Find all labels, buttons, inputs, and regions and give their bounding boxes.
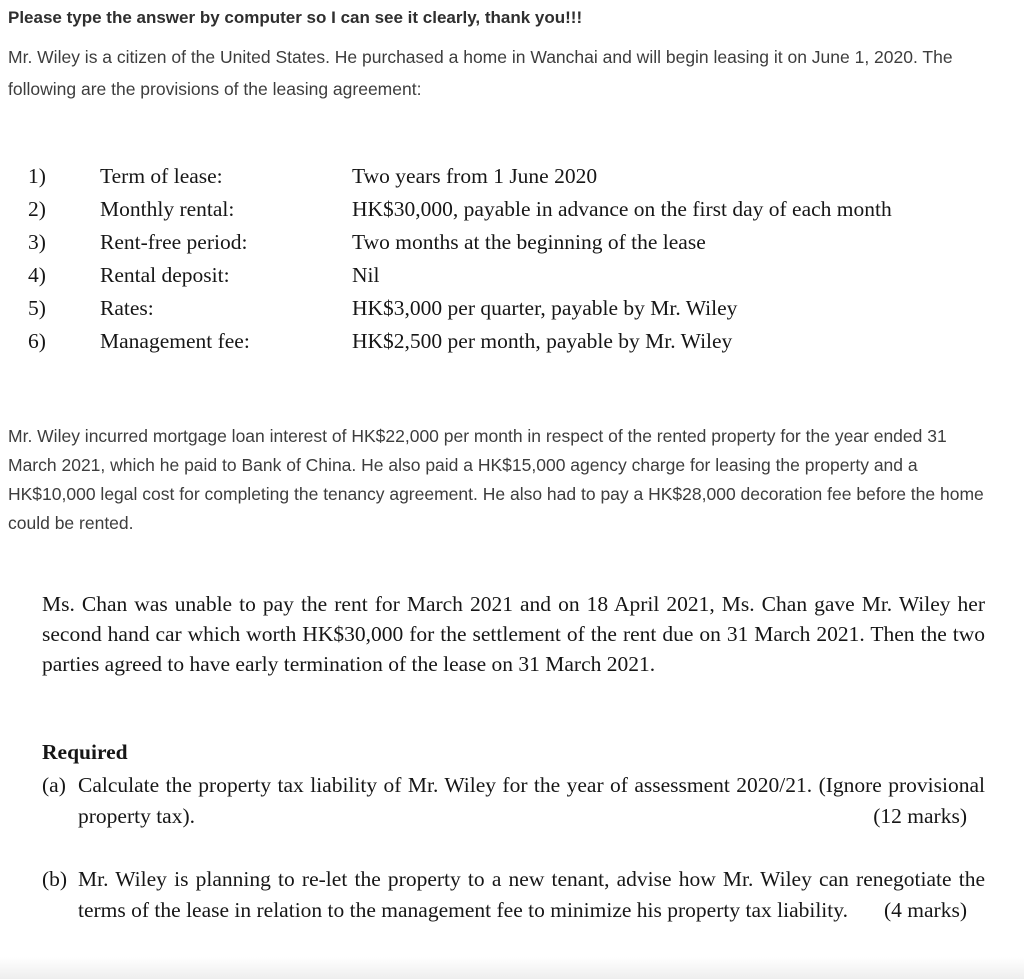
provision-label: Management fee:	[100, 325, 352, 358]
provision-label: Term of lease:	[100, 160, 352, 193]
provision-row: 2) Monthly rental: HK$30,000, payable in…	[28, 193, 988, 226]
item-b-marks: (4 marks)	[884, 895, 967, 926]
intro-paragraph: Mr. Wiley is a citizen of the United Sta…	[8, 41, 983, 105]
required-item-b: (b) Mr. Wiley is planning to re-let the …	[42, 864, 985, 925]
provision-row: 6) Management fee: HK$2,500 per month, p…	[28, 325, 988, 358]
provision-value: Nil	[352, 259, 972, 292]
provision-label: Rates:	[100, 292, 352, 325]
chan-paragraph: Ms. Chan was unable to pay the rent for …	[42, 589, 985, 679]
item-a-marks: (12 marks)	[873, 801, 967, 832]
required-item-a: (a) Calculate the property tax liability…	[42, 770, 985, 832]
page-bottom-shade	[0, 957, 1024, 979]
provision-label: Rent-free period:	[100, 226, 352, 259]
provision-row: 5) Rates: HK$3,000 per quarter, payable …	[28, 292, 988, 325]
item-a-marker: (a)	[42, 770, 66, 801]
provision-row: 3) Rent-free period: Two months at the b…	[28, 226, 988, 259]
provision-value: Two years from 1 June 2020	[352, 160, 972, 193]
provision-row: 4) Rental deposit: Nil	[28, 259, 988, 292]
question-page: Please type the answer by computer so I …	[0, 0, 1024, 979]
provision-label: Monthly rental:	[100, 193, 352, 226]
provision-label: Rental deposit:	[100, 259, 352, 292]
provision-number: 6)	[28, 325, 100, 358]
item-b-marker: (b)	[42, 864, 67, 895]
provision-row: 1) Term of lease: Two years from 1 June …	[28, 160, 988, 193]
provision-value: HK$3,000 per quarter, payable by Mr. Wil…	[352, 292, 972, 325]
lease-provisions-list: 1) Term of lease: Two years from 1 June …	[28, 160, 988, 358]
provision-number: 2)	[28, 193, 100, 226]
provision-value: HK$30,000, payable in advance on the fir…	[352, 193, 972, 226]
provision-number: 3)	[28, 226, 100, 259]
provision-value: Two months at the beginning of the lease	[352, 226, 972, 259]
provision-number: 4)	[28, 259, 100, 292]
required-heading: Required	[42, 740, 128, 765]
provision-number: 5)	[28, 292, 100, 325]
item-a-text: Calculate the property tax liability of …	[78, 773, 985, 828]
provision-value: HK$2,500 per month, payable by Mr. Wiley	[352, 325, 972, 358]
expenses-paragraph: Mr. Wiley incurred mortgage loan interes…	[8, 422, 985, 538]
typed-note: Please type the answer by computer so I …	[8, 5, 998, 31]
item-b-text: Mr. Wiley is planning to re-let the prop…	[78, 867, 985, 922]
provision-number: 1)	[28, 160, 100, 193]
